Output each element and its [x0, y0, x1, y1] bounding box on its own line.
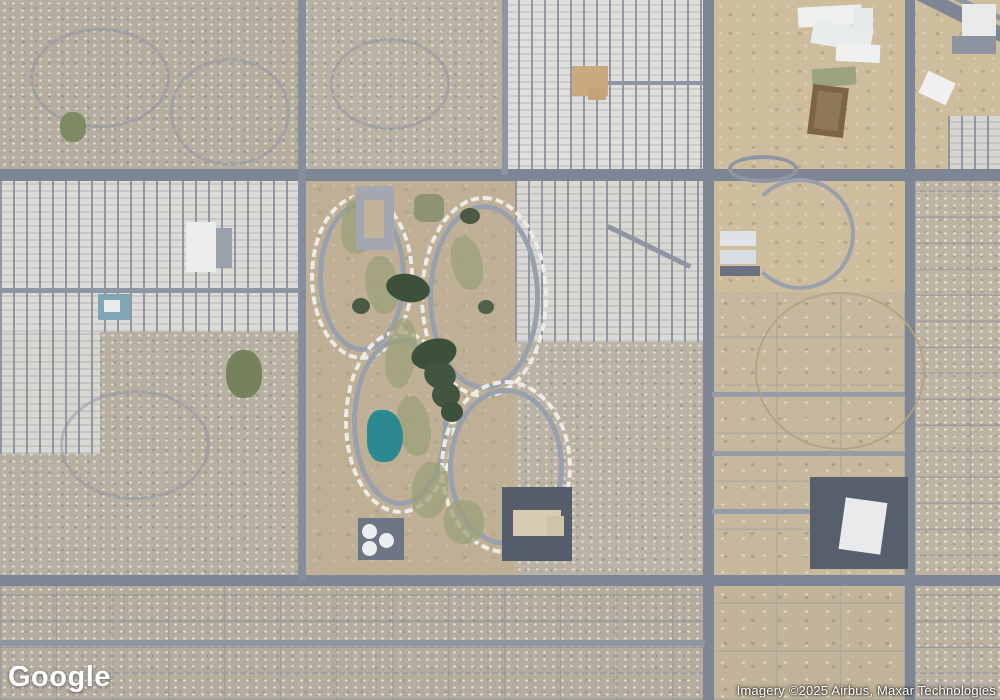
residential-far-right — [914, 174, 1000, 582]
street-rural-2 — [712, 451, 905, 456]
curvy-street-nw-2 — [170, 58, 290, 166]
apartments-east-building-1 — [720, 231, 756, 246]
ne-commercial-parking — [952, 36, 996, 54]
commercial-west-building — [186, 222, 216, 272]
park-green-2 — [414, 194, 444, 222]
road-horizontal-south — [0, 575, 1000, 586]
tree-cluster-3 — [478, 300, 494, 314]
storage-tank-3 — [362, 541, 377, 556]
curvy-street-west — [60, 390, 210, 500]
school-mid-wing — [546, 516, 564, 536]
curvy-street-nw-1 — [30, 28, 170, 128]
google-logo[interactable]: Google — [8, 661, 111, 694]
rec-center-west-building — [104, 300, 120, 312]
ne-commercial-building — [962, 4, 996, 36]
road-vertical-center — [703, 0, 714, 700]
tree-cluster-2 — [460, 208, 480, 224]
park-green-1 — [226, 350, 262, 398]
apartments-east-building-2 — [720, 250, 756, 264]
commercial-west-parking — [216, 228, 232, 268]
storage-tank-2 — [379, 533, 394, 548]
apartment-courtyard — [364, 200, 384, 238]
desert-curve-road — [745, 178, 855, 290]
street-vertical-505 — [502, 0, 508, 175]
street-horizontal-mhp-west — [0, 288, 300, 293]
street-horizontal-south — [0, 640, 705, 646]
park-green-northwest — [60, 112, 86, 142]
dirt-ballfield-infield — [814, 91, 842, 132]
retail-store-building — [839, 497, 888, 554]
imagery-attribution: Imagery ©2025 Airbus, Maxar Technologies — [737, 683, 996, 698]
tree-cluster-1 — [352, 298, 370, 314]
storage-tank-1 — [362, 524, 377, 539]
road-horizontal-north — [0, 169, 1000, 181]
teal-lake — [367, 410, 403, 462]
apartments-east-parking — [720, 266, 760, 276]
clubhouse-north-annex — [588, 88, 606, 100]
curvy-street-nc — [330, 38, 450, 130]
rv-storage-northeast — [948, 116, 1000, 172]
desert-dirt-circle — [755, 292, 925, 450]
golf-pond-5 — [441, 402, 463, 422]
satellite-map[interactable]: Google Imagery ©2025 Airbus, Maxar Techn… — [0, 0, 1000, 700]
school-ne-building-4 — [853, 8, 873, 34]
school-ne-building-3 — [836, 43, 881, 63]
mobile-home-park-west — [0, 174, 302, 332]
